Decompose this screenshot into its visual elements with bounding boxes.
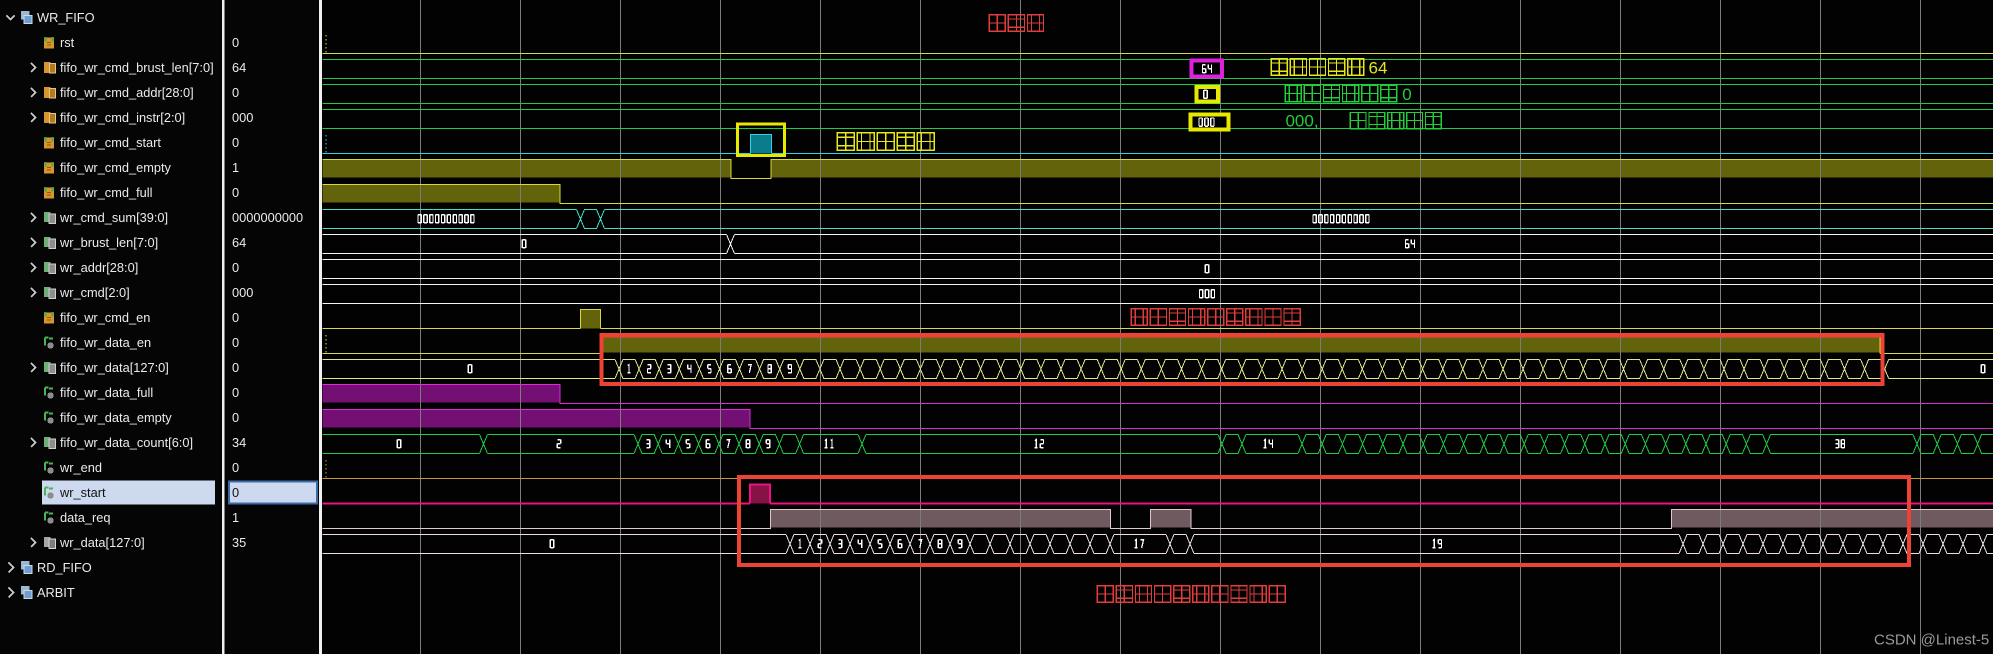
svg-text:000: 000 xyxy=(232,285,253,300)
svg-text:64: 64 xyxy=(232,235,246,250)
svg-text:1: 1 xyxy=(232,160,239,175)
svg-text:data_req: data_req xyxy=(60,510,111,525)
svg-text:000: 000 xyxy=(232,110,253,125)
svg-text:64: 64 xyxy=(1369,59,1388,78)
svg-text:0: 0 xyxy=(232,260,239,275)
svg-text:fifo_wr_cmd_empty: fifo_wr_cmd_empty xyxy=(60,160,172,175)
svg-text:1: 1 xyxy=(232,510,239,525)
svg-text:wr_brust_len[7:0]: wr_brust_len[7:0] xyxy=(59,235,158,250)
svg-text:fifo_wr_data[127:0]: fifo_wr_data[127:0] xyxy=(60,360,169,375)
svg-text:fifo_wr_cmd_addr[28:0]: fifo_wr_cmd_addr[28:0] xyxy=(60,85,194,100)
svg-text:0: 0 xyxy=(232,185,239,200)
svg-text:0: 0 xyxy=(232,410,239,425)
svg-text:0: 0 xyxy=(232,335,239,350)
svg-text:fifo_wr_cmd_start: fifo_wr_cmd_start xyxy=(60,135,161,150)
svg-text:wr_end: wr_end xyxy=(59,460,102,475)
svg-text:CSDN @Linest-5: CSDN @Linest-5 xyxy=(1874,632,1989,649)
svg-text:0: 0 xyxy=(232,460,239,475)
svg-text:35: 35 xyxy=(232,535,246,550)
svg-text:0: 0 xyxy=(232,360,239,375)
svg-text:0: 0 xyxy=(232,35,239,50)
svg-text:34: 34 xyxy=(232,435,246,450)
svg-text:rst: rst xyxy=(60,35,75,50)
svg-text:0: 0 xyxy=(232,310,239,325)
svg-text:fifo_wr_data_count[6:0]: fifo_wr_data_count[6:0] xyxy=(60,435,193,450)
svg-text:fifo_wr_cmd_brust_len[7:0]: fifo_wr_cmd_brust_len[7:0] xyxy=(60,60,214,75)
svg-text:fifo_wr_cmd_en: fifo_wr_cmd_en xyxy=(60,310,150,325)
svg-text:fifo_wr_data_en: fifo_wr_data_en xyxy=(60,335,151,350)
svg-text:000,: 000, xyxy=(1285,112,1318,131)
svg-text:wr_data[127:0]: wr_data[127:0] xyxy=(59,535,145,550)
svg-text:ARBIT: ARBIT xyxy=(37,585,75,600)
svg-text:fifo_wr_cmd_instr[2:0]: fifo_wr_cmd_instr[2:0] xyxy=(60,110,185,125)
svg-text:wr_start: wr_start xyxy=(59,485,106,500)
svg-text:0: 0 xyxy=(232,85,239,100)
svg-text:WR_FIFO: WR_FIFO xyxy=(37,10,95,25)
svg-text:wr_cmd_sum[39:0]: wr_cmd_sum[39:0] xyxy=(59,210,168,225)
svg-text:0000000000: 0000000000 xyxy=(232,210,303,225)
svg-text:0: 0 xyxy=(232,385,239,400)
svg-text:0: 0 xyxy=(232,485,239,500)
svg-text:wr_addr[28:0]: wr_addr[28:0] xyxy=(59,260,138,275)
svg-text:fifo_wr_data_full: fifo_wr_data_full xyxy=(60,385,153,400)
svg-text:0: 0 xyxy=(232,135,239,150)
svg-text:0: 0 xyxy=(1402,85,1411,104)
svg-text:wr_cmd[2:0]: wr_cmd[2:0] xyxy=(59,285,130,300)
svg-text:RD_FIFO: RD_FIFO xyxy=(37,560,92,575)
svg-text:64: 64 xyxy=(232,60,246,75)
svg-text:fifo_wr_data_empty: fifo_wr_data_empty xyxy=(60,410,172,425)
svg-text:fifo_wr_cmd_full: fifo_wr_cmd_full xyxy=(60,185,152,200)
